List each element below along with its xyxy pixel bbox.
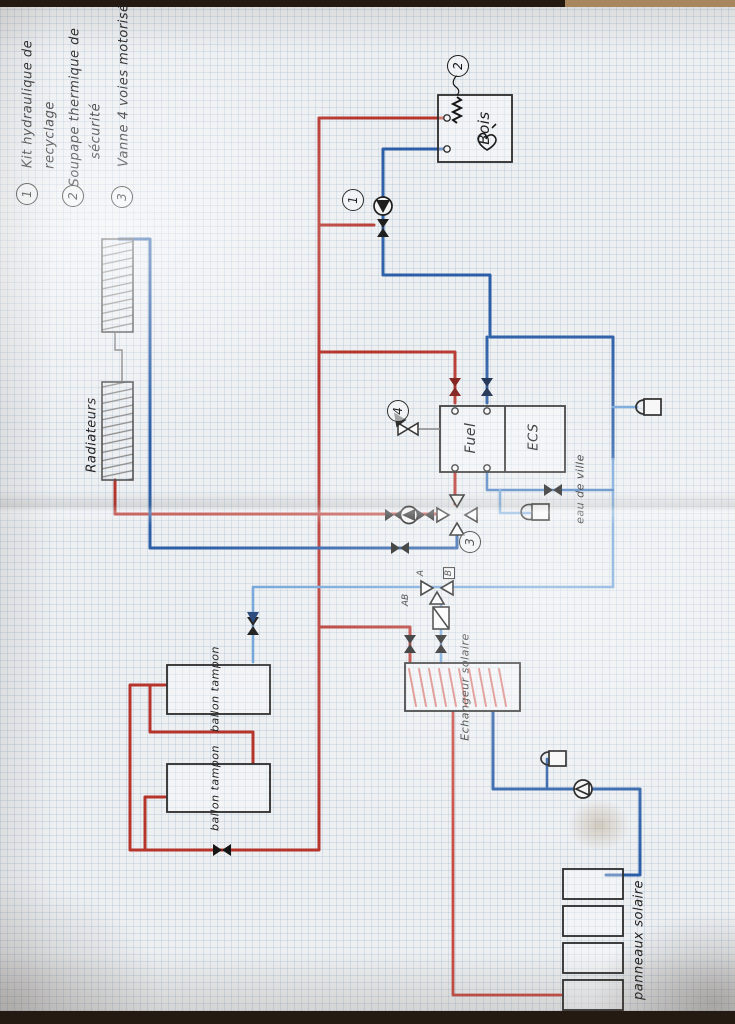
pipe-solar-hot xyxy=(453,712,561,995)
paper-stain xyxy=(568,799,630,851)
legend-callout-1: 1 xyxy=(16,183,38,205)
port xyxy=(452,408,458,414)
city-water-label: eau de ville xyxy=(574,454,587,524)
schematic-drawing xyxy=(0,7,735,1011)
legend-num-2: 2 xyxy=(67,192,79,200)
component-boxes xyxy=(167,95,623,1010)
graph-paper: 1 Kit hydraulique de recyclage 2 Soupape… xyxy=(0,7,735,1011)
radiators-label: Radiateurs xyxy=(85,397,100,472)
pipe-ecs-tap-stub xyxy=(500,490,530,513)
port xyxy=(484,408,490,414)
four-way-motorized-valve-icon xyxy=(437,495,477,535)
valve-icon xyxy=(435,635,447,653)
pipe-radiator-return xyxy=(119,239,457,548)
pipe-solar-return xyxy=(493,712,640,875)
ecs-label: ECS xyxy=(527,423,542,450)
callout-recycling-kit: 1 xyxy=(342,189,364,211)
valve-icon xyxy=(404,635,416,653)
callout-4-num: 4 xyxy=(392,407,404,415)
callout-1-num: 1 xyxy=(347,196,359,204)
tap-icon xyxy=(541,751,566,766)
check-valve-icon xyxy=(544,484,562,496)
pipe-buffer-loop xyxy=(130,629,319,850)
solar-pump-icon xyxy=(574,780,592,798)
pump-icon xyxy=(401,507,418,524)
hot-water-pipes-light xyxy=(409,669,561,995)
legend-callout-3: 3 xyxy=(111,186,133,208)
valve-icon xyxy=(416,509,434,521)
legend-num-3: 3 xyxy=(116,193,128,201)
solar-panel-1 xyxy=(563,869,623,899)
valve-icon xyxy=(391,542,409,554)
solar-panels-label: panneaux solaire xyxy=(632,880,647,1000)
tap-icon xyxy=(636,399,661,415)
legend-text-3: Vanne 4 voies motorisée xyxy=(117,0,132,167)
port xyxy=(444,115,450,121)
solar-panel-4 xyxy=(563,980,623,1010)
radiator-1 xyxy=(102,239,133,332)
legend-text-1b: recyclage xyxy=(43,101,58,169)
filter-icon xyxy=(433,607,449,629)
port xyxy=(452,465,458,471)
pump-icon xyxy=(374,197,392,215)
solar-panel-2 xyxy=(563,906,623,936)
pipe-city-to-ecs xyxy=(487,472,613,490)
radiator-bridge xyxy=(115,332,122,382)
mixing-port-a-label: A xyxy=(416,570,426,576)
wood-boiler-label: Bois xyxy=(475,111,493,144)
pipe-radiator-supply-manifold xyxy=(115,480,445,514)
solar-exchanger-label: Echangeur solaire xyxy=(459,633,472,741)
callout-3-num: 3 xyxy=(464,538,476,546)
callout-fuel-mixing-valve: 4 xyxy=(387,400,409,422)
legend-num-1: 1 xyxy=(21,190,33,198)
buffer-tank1-label: ballon tampon xyxy=(209,646,222,732)
port xyxy=(484,465,490,471)
radiators xyxy=(102,239,133,480)
valve-icon xyxy=(449,378,461,396)
callout-four-way-valve: 3 xyxy=(459,531,481,553)
fuel-boiler-label: Fuel xyxy=(463,423,479,454)
port xyxy=(444,146,450,152)
buffer-tank2-label: ballon tampon xyxy=(209,745,222,831)
valve-icon xyxy=(481,378,493,396)
hot-water-pipes xyxy=(115,118,455,850)
mixing-valve-icon xyxy=(421,581,453,604)
fuel-ecs-box xyxy=(440,406,565,472)
legend-callout-2: 2 xyxy=(62,185,84,207)
mixing-port-b-label: B xyxy=(443,567,455,579)
callout-thermal-safety: 2 xyxy=(447,55,469,77)
legend-text-2b: sécurité xyxy=(89,103,104,159)
solar-panel-3 xyxy=(563,943,623,973)
pipe-buffer2-feed xyxy=(145,797,165,850)
shutoff-valves xyxy=(213,219,562,856)
callout-2-num: 2 xyxy=(452,62,464,70)
valve-icon xyxy=(377,219,389,237)
mixing-port-ab-label: AB xyxy=(401,594,411,606)
pipe-fuel-supply-branch xyxy=(319,352,455,403)
photo-of-hand-drawn-schematic: 1 Kit hydraulique de recyclage 2 Soupape… xyxy=(0,0,735,1024)
legend-text-2a: Soupape thermique de xyxy=(68,28,83,187)
radiator-2 xyxy=(102,382,133,480)
legend-text-1a: Kit hydraulique de xyxy=(21,40,36,168)
check-valve-icon xyxy=(213,844,231,856)
